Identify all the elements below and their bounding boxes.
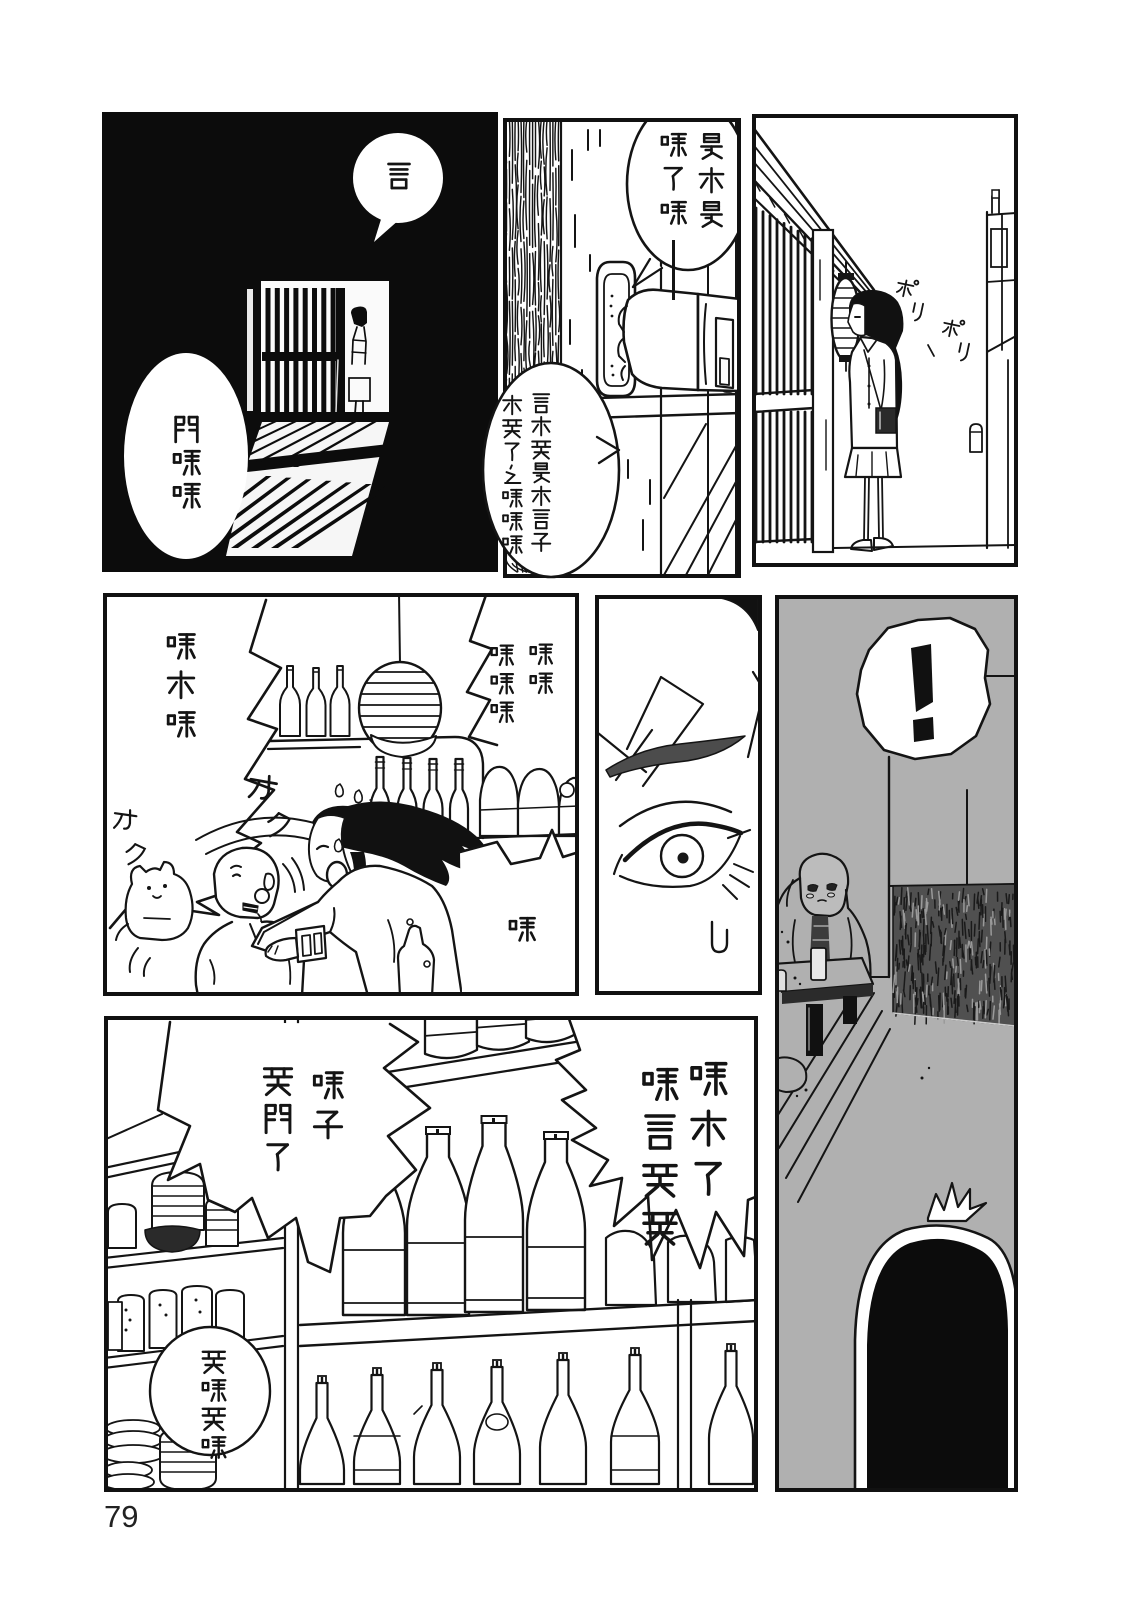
svg-text:79: 79 <box>104 1499 138 1534</box>
